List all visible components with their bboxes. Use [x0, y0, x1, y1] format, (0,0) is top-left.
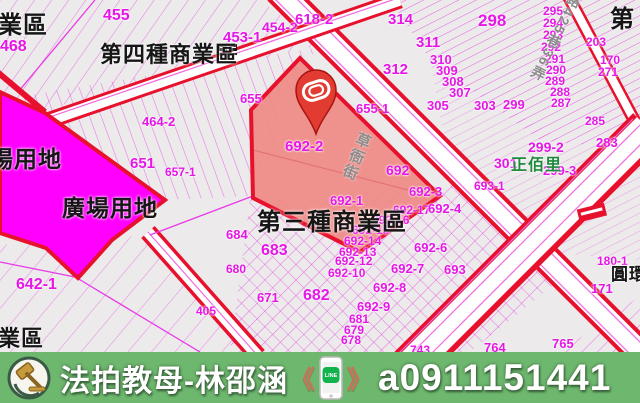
- quote-open: 《: [290, 360, 315, 396]
- brand-name: 法拍教母-林邵涵: [60, 356, 288, 400]
- gavel-logo-icon: [5, 354, 53, 402]
- line-phone-icon: LINE: [317, 355, 345, 401]
- screenshot-stage: 455468453-1454-2618-23143113122983103093…: [0, 0, 640, 403]
- quote-close: 》: [347, 360, 372, 396]
- cadastral-map[interactable]: 455468453-1454-2618-23143113122983103093…: [0, 0, 640, 352]
- line-logo-text: LINE: [325, 373, 338, 379]
- phone-number: a0911151441: [378, 357, 611, 399]
- contact-banner: 法拍教母-林邵涵 《 LINE 》 a0911151441: [0, 352, 640, 403]
- cadastral-map-svg: [0, 0, 640, 352]
